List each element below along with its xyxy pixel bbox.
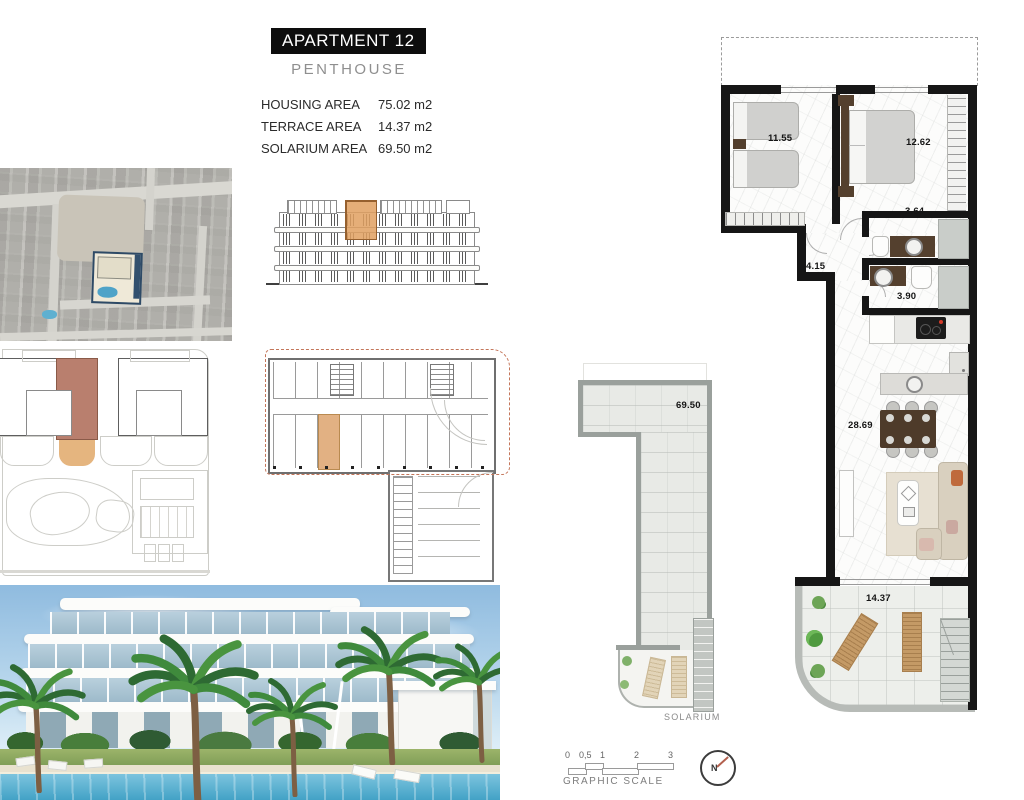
wall bbox=[862, 308, 968, 315]
tv-unit bbox=[839, 470, 854, 537]
terrace-area-label: TERRACE AREA bbox=[261, 119, 361, 134]
plant bbox=[620, 680, 629, 689]
building-edge bbox=[133, 255, 141, 299]
scale-tick-2: 2 bbox=[634, 750, 639, 760]
parking-stairs bbox=[393, 476, 413, 574]
scale-tick-05: 0,5 bbox=[579, 750, 592, 760]
wall bbox=[832, 94, 840, 224]
deck-sq bbox=[172, 544, 184, 562]
pool-blue bbox=[97, 286, 117, 298]
pillow-split bbox=[849, 145, 865, 146]
bedroom2-area: 12.62 bbox=[906, 137, 931, 148]
terrace-area-value: 14.37 m2 bbox=[378, 119, 432, 134]
neighbor-pool bbox=[42, 310, 57, 319]
terrace-area: 14.37 bbox=[866, 593, 891, 604]
toilet bbox=[911, 266, 932, 289]
plant bbox=[622, 656, 632, 666]
bath2-area: 3.90 bbox=[897, 291, 916, 302]
cushion bbox=[951, 470, 963, 486]
road-edge bbox=[0, 570, 210, 573]
plant bbox=[811, 664, 825, 678]
cushion bbox=[946, 520, 958, 534]
roof-block bbox=[380, 200, 442, 214]
throw bbox=[919, 538, 934, 551]
plate bbox=[886, 414, 894, 422]
plate bbox=[922, 414, 930, 422]
scale-bar-segment bbox=[602, 768, 639, 775]
roof-parapet bbox=[60, 598, 360, 610]
decor-diamond bbox=[901, 486, 917, 502]
plate bbox=[904, 436, 912, 444]
compass-circle bbox=[700, 750, 736, 786]
wardrobe bbox=[947, 95, 966, 211]
coffee-table bbox=[897, 480, 919, 526]
solarium-area-label: SOLARIUM AREA bbox=[261, 141, 367, 156]
roof-dashed-outline bbox=[721, 37, 978, 86]
wall bbox=[826, 272, 835, 585]
building-roof bbox=[97, 256, 132, 279]
page-subtitle: PENTHOUSE bbox=[271, 61, 427, 78]
inner-block bbox=[26, 390, 72, 436]
ground-terrace bbox=[100, 436, 152, 466]
solarium-area-figure: 69.50 bbox=[676, 400, 701, 411]
living-area: 28.69 bbox=[848, 420, 873, 431]
stair-diagonal bbox=[940, 619, 954, 655]
ground-terrace bbox=[154, 436, 208, 466]
nightstand bbox=[838, 186, 854, 197]
burner bbox=[920, 324, 931, 335]
wall bbox=[721, 85, 781, 94]
headboard bbox=[841, 106, 849, 186]
deck-sq bbox=[158, 544, 170, 562]
scale-tick-0: 0 bbox=[565, 750, 570, 760]
deck-rect bbox=[140, 506, 194, 538]
inner-block bbox=[136, 390, 182, 436]
solarium-caption: SOLARIUM bbox=[664, 712, 721, 722]
palm-tree-icon bbox=[430, 640, 500, 765]
solarium-area-value: 69.50 m2 bbox=[378, 141, 432, 156]
stairs bbox=[693, 618, 714, 712]
subject-building bbox=[91, 251, 143, 305]
roof-block bbox=[446, 200, 470, 214]
scale-tick-1: 1 bbox=[600, 750, 605, 760]
scale-bar-segment bbox=[637, 763, 674, 770]
terrace-wall bbox=[616, 645, 680, 650]
hall-area: 4.15 bbox=[806, 261, 825, 272]
sliding-door bbox=[840, 579, 930, 585]
wall bbox=[795, 577, 840, 586]
wardrobe bbox=[725, 212, 805, 226]
island-sink bbox=[906, 376, 923, 393]
wood-lounger bbox=[902, 612, 922, 672]
plant bbox=[812, 596, 825, 609]
solarium-wall bbox=[578, 432, 641, 437]
highlighted-terrace-site bbox=[59, 440, 95, 466]
housing-area-label: HOUSING AREA bbox=[261, 97, 360, 112]
sink bbox=[874, 268, 893, 287]
wall bbox=[721, 85, 730, 233]
housing-area-value: 75.02 m2 bbox=[378, 97, 432, 112]
wall bbox=[862, 211, 869, 237]
nightstand bbox=[838, 95, 854, 106]
nightstand bbox=[733, 139, 746, 149]
scale-tick-3: 3 bbox=[668, 750, 673, 760]
plate bbox=[886, 436, 894, 444]
dining-table bbox=[880, 410, 936, 448]
shower bbox=[938, 266, 969, 309]
bush bbox=[806, 630, 823, 647]
window-row bbox=[283, 252, 469, 264]
burner bbox=[932, 326, 941, 335]
scale-label: GRAPHIC SCALE bbox=[563, 776, 664, 787]
sun-lounger bbox=[671, 656, 687, 698]
wall bbox=[836, 85, 875, 94]
page-title: APARTMENT 12 bbox=[271, 28, 426, 54]
burner-light bbox=[939, 320, 943, 324]
unit-dashed-outline bbox=[265, 349, 510, 475]
compass-n-label: N bbox=[711, 763, 718, 773]
plan-sheet: APARTMENT 12 PENTHOUSE HOUSING AREA 75.0… bbox=[0, 0, 1024, 800]
roof-notch bbox=[130, 350, 190, 362]
roof-block bbox=[287, 200, 337, 214]
toilet bbox=[872, 236, 889, 257]
palm-tree-icon bbox=[0, 663, 92, 793]
deck-rect bbox=[140, 478, 194, 500]
single-bed bbox=[733, 150, 799, 188]
wall bbox=[862, 258, 968, 265]
ground-terrace bbox=[0, 436, 54, 466]
plate bbox=[922, 436, 930, 444]
terrace-stairs bbox=[940, 618, 970, 702]
sink bbox=[905, 238, 923, 256]
window bbox=[781, 87, 836, 93]
shower bbox=[938, 219, 969, 259]
cabinet-knob bbox=[962, 369, 965, 372]
stove bbox=[916, 317, 946, 339]
window bbox=[875, 87, 928, 93]
fridge bbox=[869, 315, 895, 344]
bedroom1-area: 11.55 bbox=[768, 133, 792, 144]
window-row bbox=[283, 271, 469, 282]
kitchen-island bbox=[880, 373, 968, 395]
plate bbox=[904, 414, 912, 422]
highlighted-unit-elevation bbox=[345, 200, 377, 240]
deck-sq bbox=[144, 544, 156, 562]
bath1-area: 3.64 bbox=[905, 206, 924, 217]
decor-tray bbox=[903, 507, 915, 517]
